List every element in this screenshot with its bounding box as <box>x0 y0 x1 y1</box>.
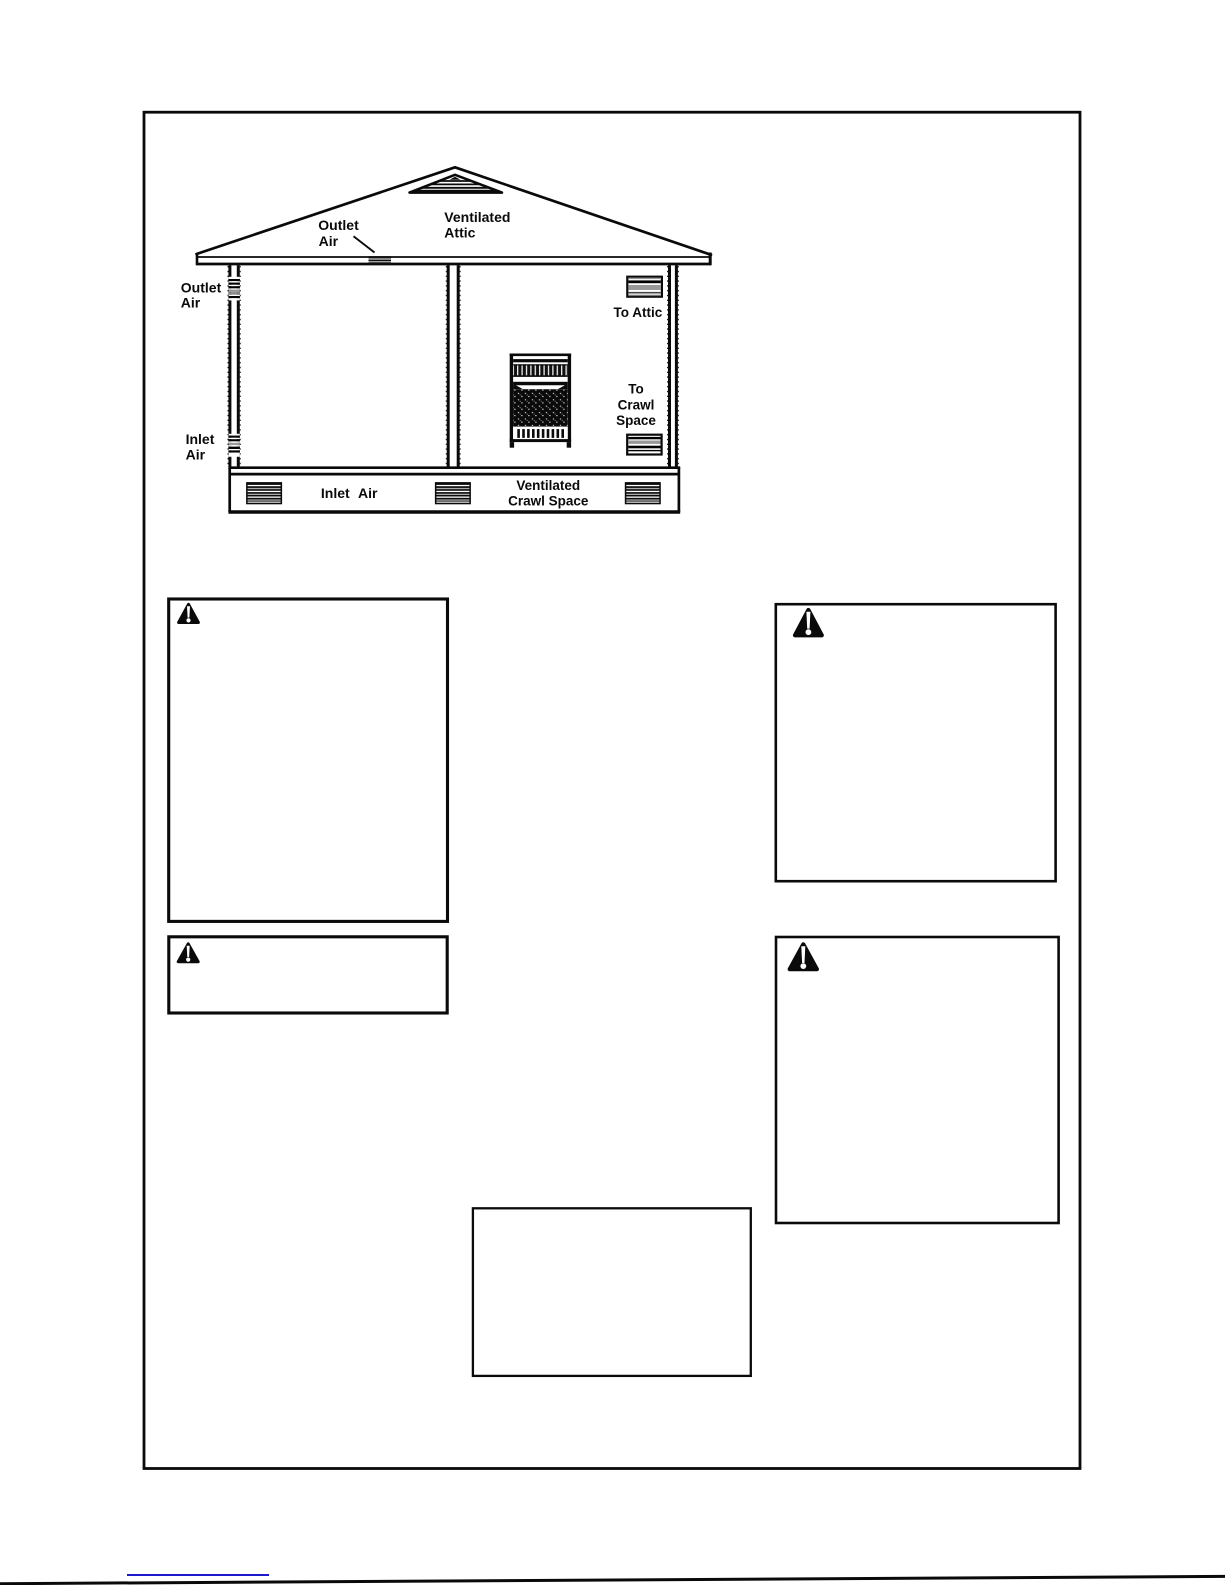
svg-text:Ventilated: Ventilated <box>516 478 580 493</box>
svg-text:To: To <box>628 382 644 397</box>
svg-text:Air: Air <box>186 446 206 462</box>
svg-text:Ventilated: Ventilated <box>444 209 510 225</box>
svg-text:Air: Air <box>181 295 201 311</box>
svg-text:Space: Space <box>616 413 656 428</box>
svg-text:Attic: Attic <box>444 225 475 241</box>
svg-text:Crawl: Crawl <box>618 397 655 412</box>
svg-text:Inlet: Inlet <box>186 431 215 447</box>
svg-text:Outlet: Outlet <box>318 217 359 233</box>
svg-text:To Attic: To Attic <box>614 305 663 320</box>
svg-text:Outlet: Outlet <box>181 280 222 296</box>
svg-text:Air: Air <box>319 233 339 249</box>
svg-text:Air: Air <box>358 485 378 501</box>
svg-text:Crawl Space: Crawl Space <box>508 493 589 508</box>
svg-text:Inlet: Inlet <box>321 485 350 501</box>
